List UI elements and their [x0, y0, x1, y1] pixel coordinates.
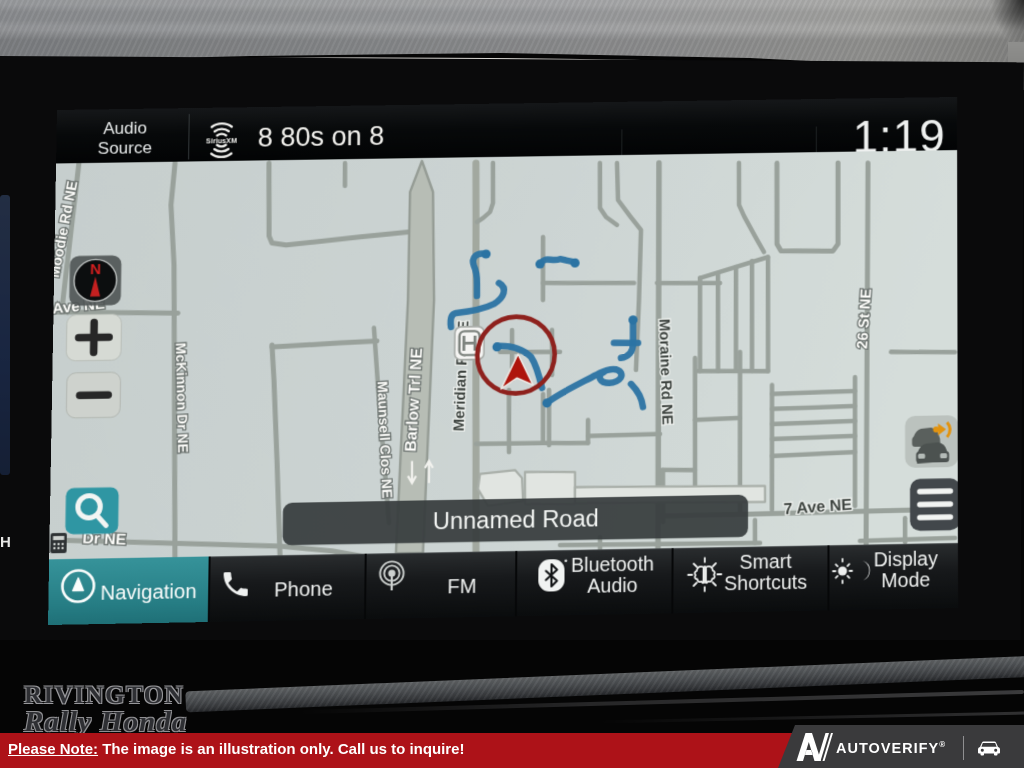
svg-text:Unnamed Road: Unnamed Road [433, 505, 599, 534]
svg-text:McKinnon Dr NE: McKinnon Dr NE [173, 342, 192, 453]
svg-text:Moraine Rd NE: Moraine Rd NE [655, 318, 675, 425]
svg-text:SiriusXM: SiriusXM [206, 137, 237, 145]
svg-text:N: N [90, 261, 101, 278]
